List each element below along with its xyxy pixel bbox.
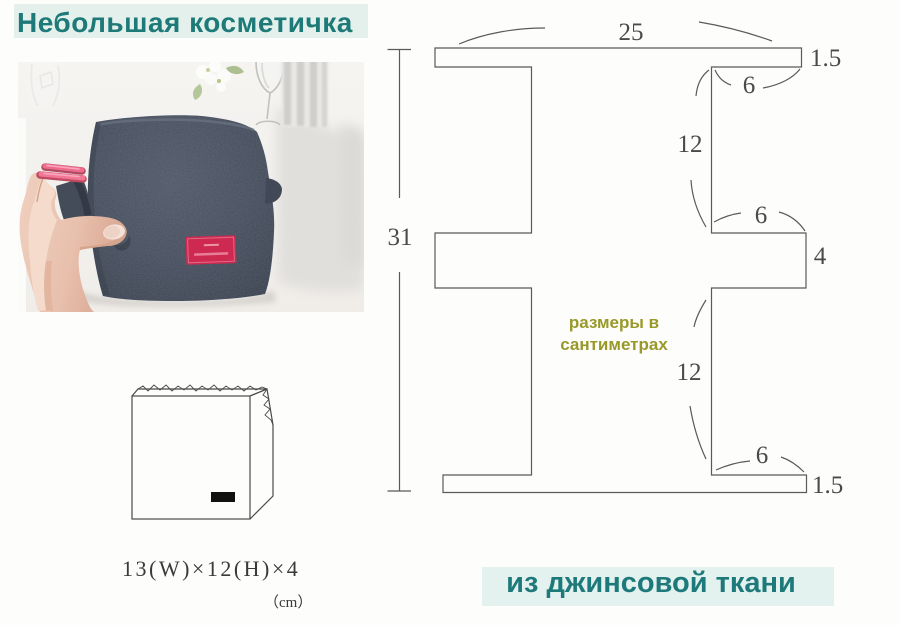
svg-text:6: 6 bbox=[755, 202, 768, 229]
svg-text:4: 4 bbox=[814, 243, 827, 270]
svg-text:1.5: 1.5 bbox=[812, 472, 843, 499]
svg-text:6: 6 bbox=[756, 442, 769, 469]
svg-text:25: 25 bbox=[619, 19, 644, 46]
svg-text:31: 31 bbox=[388, 224, 413, 251]
svg-text:12: 12 bbox=[678, 131, 703, 158]
svg-text:1.5: 1.5 bbox=[810, 45, 841, 72]
svg-text:12: 12 bbox=[677, 359, 702, 386]
svg-text:6: 6 bbox=[743, 72, 756, 99]
